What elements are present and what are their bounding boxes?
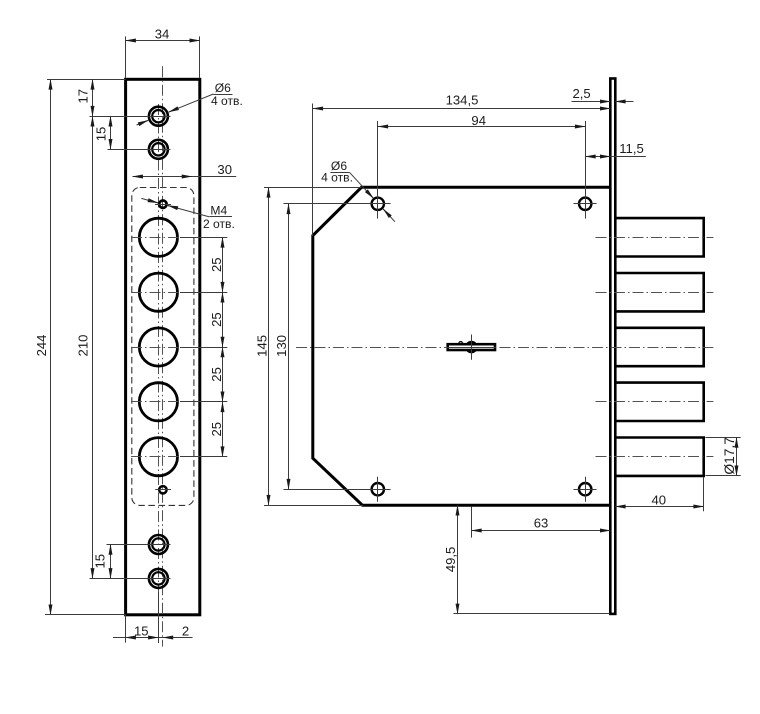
svg-text:15: 15 (94, 127, 109, 142)
svg-text:244: 244 (34, 335, 49, 357)
svg-text:2 отв.: 2 отв. (203, 217, 235, 231)
svg-text:25: 25 (209, 422, 224, 437)
svg-text:25: 25 (209, 367, 224, 382)
svg-text:25: 25 (209, 257, 224, 272)
svg-text:49,5: 49,5 (443, 547, 458, 572)
svg-text:4 отв.: 4 отв. (211, 94, 243, 108)
svg-text:15: 15 (93, 554, 108, 569)
svg-text:63: 63 (534, 516, 549, 531)
svg-text:30: 30 (217, 162, 232, 177)
svg-text:M4: M4 (210, 204, 227, 218)
svg-text:40: 40 (652, 493, 667, 508)
svg-text:Ø6: Ø6 (215, 81, 231, 95)
svg-text:130: 130 (274, 335, 289, 357)
svg-text:17: 17 (76, 89, 91, 104)
svg-text:11,5: 11,5 (619, 141, 644, 156)
svg-text:145: 145 (255, 335, 270, 357)
svg-text:15: 15 (134, 623, 149, 638)
svg-text:25: 25 (209, 312, 224, 327)
svg-text:2: 2 (182, 623, 189, 638)
svg-text:134,5: 134,5 (446, 93, 479, 108)
svg-text:Ø17,7: Ø17,7 (722, 437, 737, 475)
svg-text:210: 210 (76, 335, 91, 357)
svg-text:34: 34 (155, 26, 170, 41)
svg-text:94: 94 (471, 113, 486, 128)
svg-text:2,5: 2,5 (572, 86, 590, 101)
